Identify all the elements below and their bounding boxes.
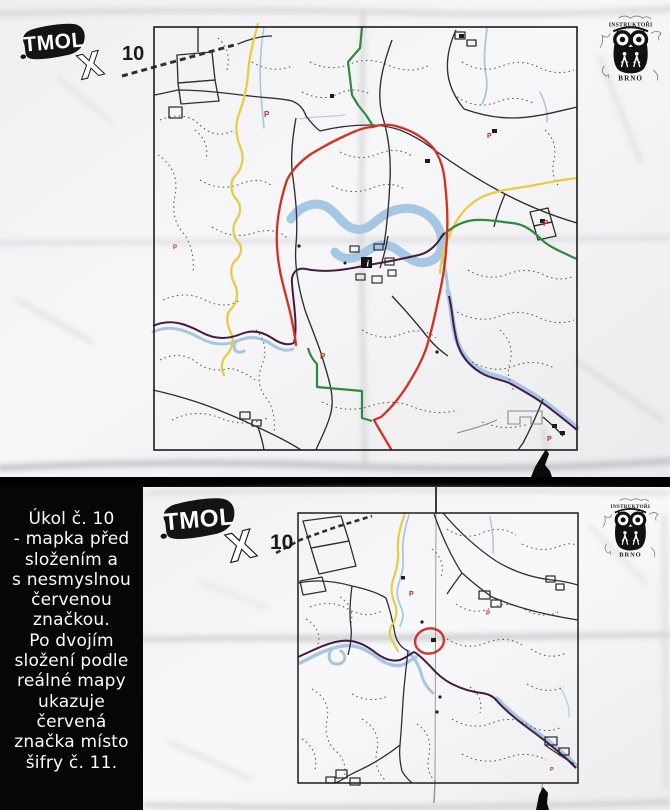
separator-strip xyxy=(0,477,670,487)
task-line: ukazuje xyxy=(0,692,143,712)
task-line: reálné mapy xyxy=(0,671,143,691)
map-number: 10 xyxy=(122,43,144,65)
scanned-maps-page: TMOL X INSTRUKTOŘI xyxy=(0,0,670,810)
map-number: 10 xyxy=(270,531,293,554)
task-line: - mapka před xyxy=(0,529,143,549)
task-line: s nesmyslnou xyxy=(0,570,143,590)
task-panel: Úkol č. 10 - mapka před složením a s nes… xyxy=(0,487,143,810)
photo-bottom: P P P 10 xyxy=(143,487,670,810)
parking-label: P xyxy=(547,436,552,443)
parking-label: P xyxy=(543,219,549,228)
task-line: Úkol č. 10 xyxy=(0,509,143,529)
photo-top: P P P P P P i 10 xyxy=(0,0,670,477)
task-line: Po dvojím xyxy=(0,631,143,651)
parking-label: P xyxy=(487,133,492,140)
paper-bottom xyxy=(143,487,670,810)
task-line: značkou. xyxy=(0,610,143,630)
parking-label: P xyxy=(550,767,554,773)
task-line: červenou xyxy=(0,590,143,610)
task-line: složení podle xyxy=(0,651,143,671)
parking-label: P xyxy=(486,611,490,617)
parking-label: P xyxy=(264,110,270,119)
task-line: červená xyxy=(0,712,143,732)
parking-label: P xyxy=(409,591,414,598)
task-line: šifry č. 11. xyxy=(0,753,143,773)
info-box: i xyxy=(361,257,372,269)
task-line: složením a xyxy=(0,550,143,570)
parking-label: P xyxy=(173,245,177,251)
parking-label: P xyxy=(320,352,326,361)
task-line: značka místo xyxy=(0,732,143,752)
